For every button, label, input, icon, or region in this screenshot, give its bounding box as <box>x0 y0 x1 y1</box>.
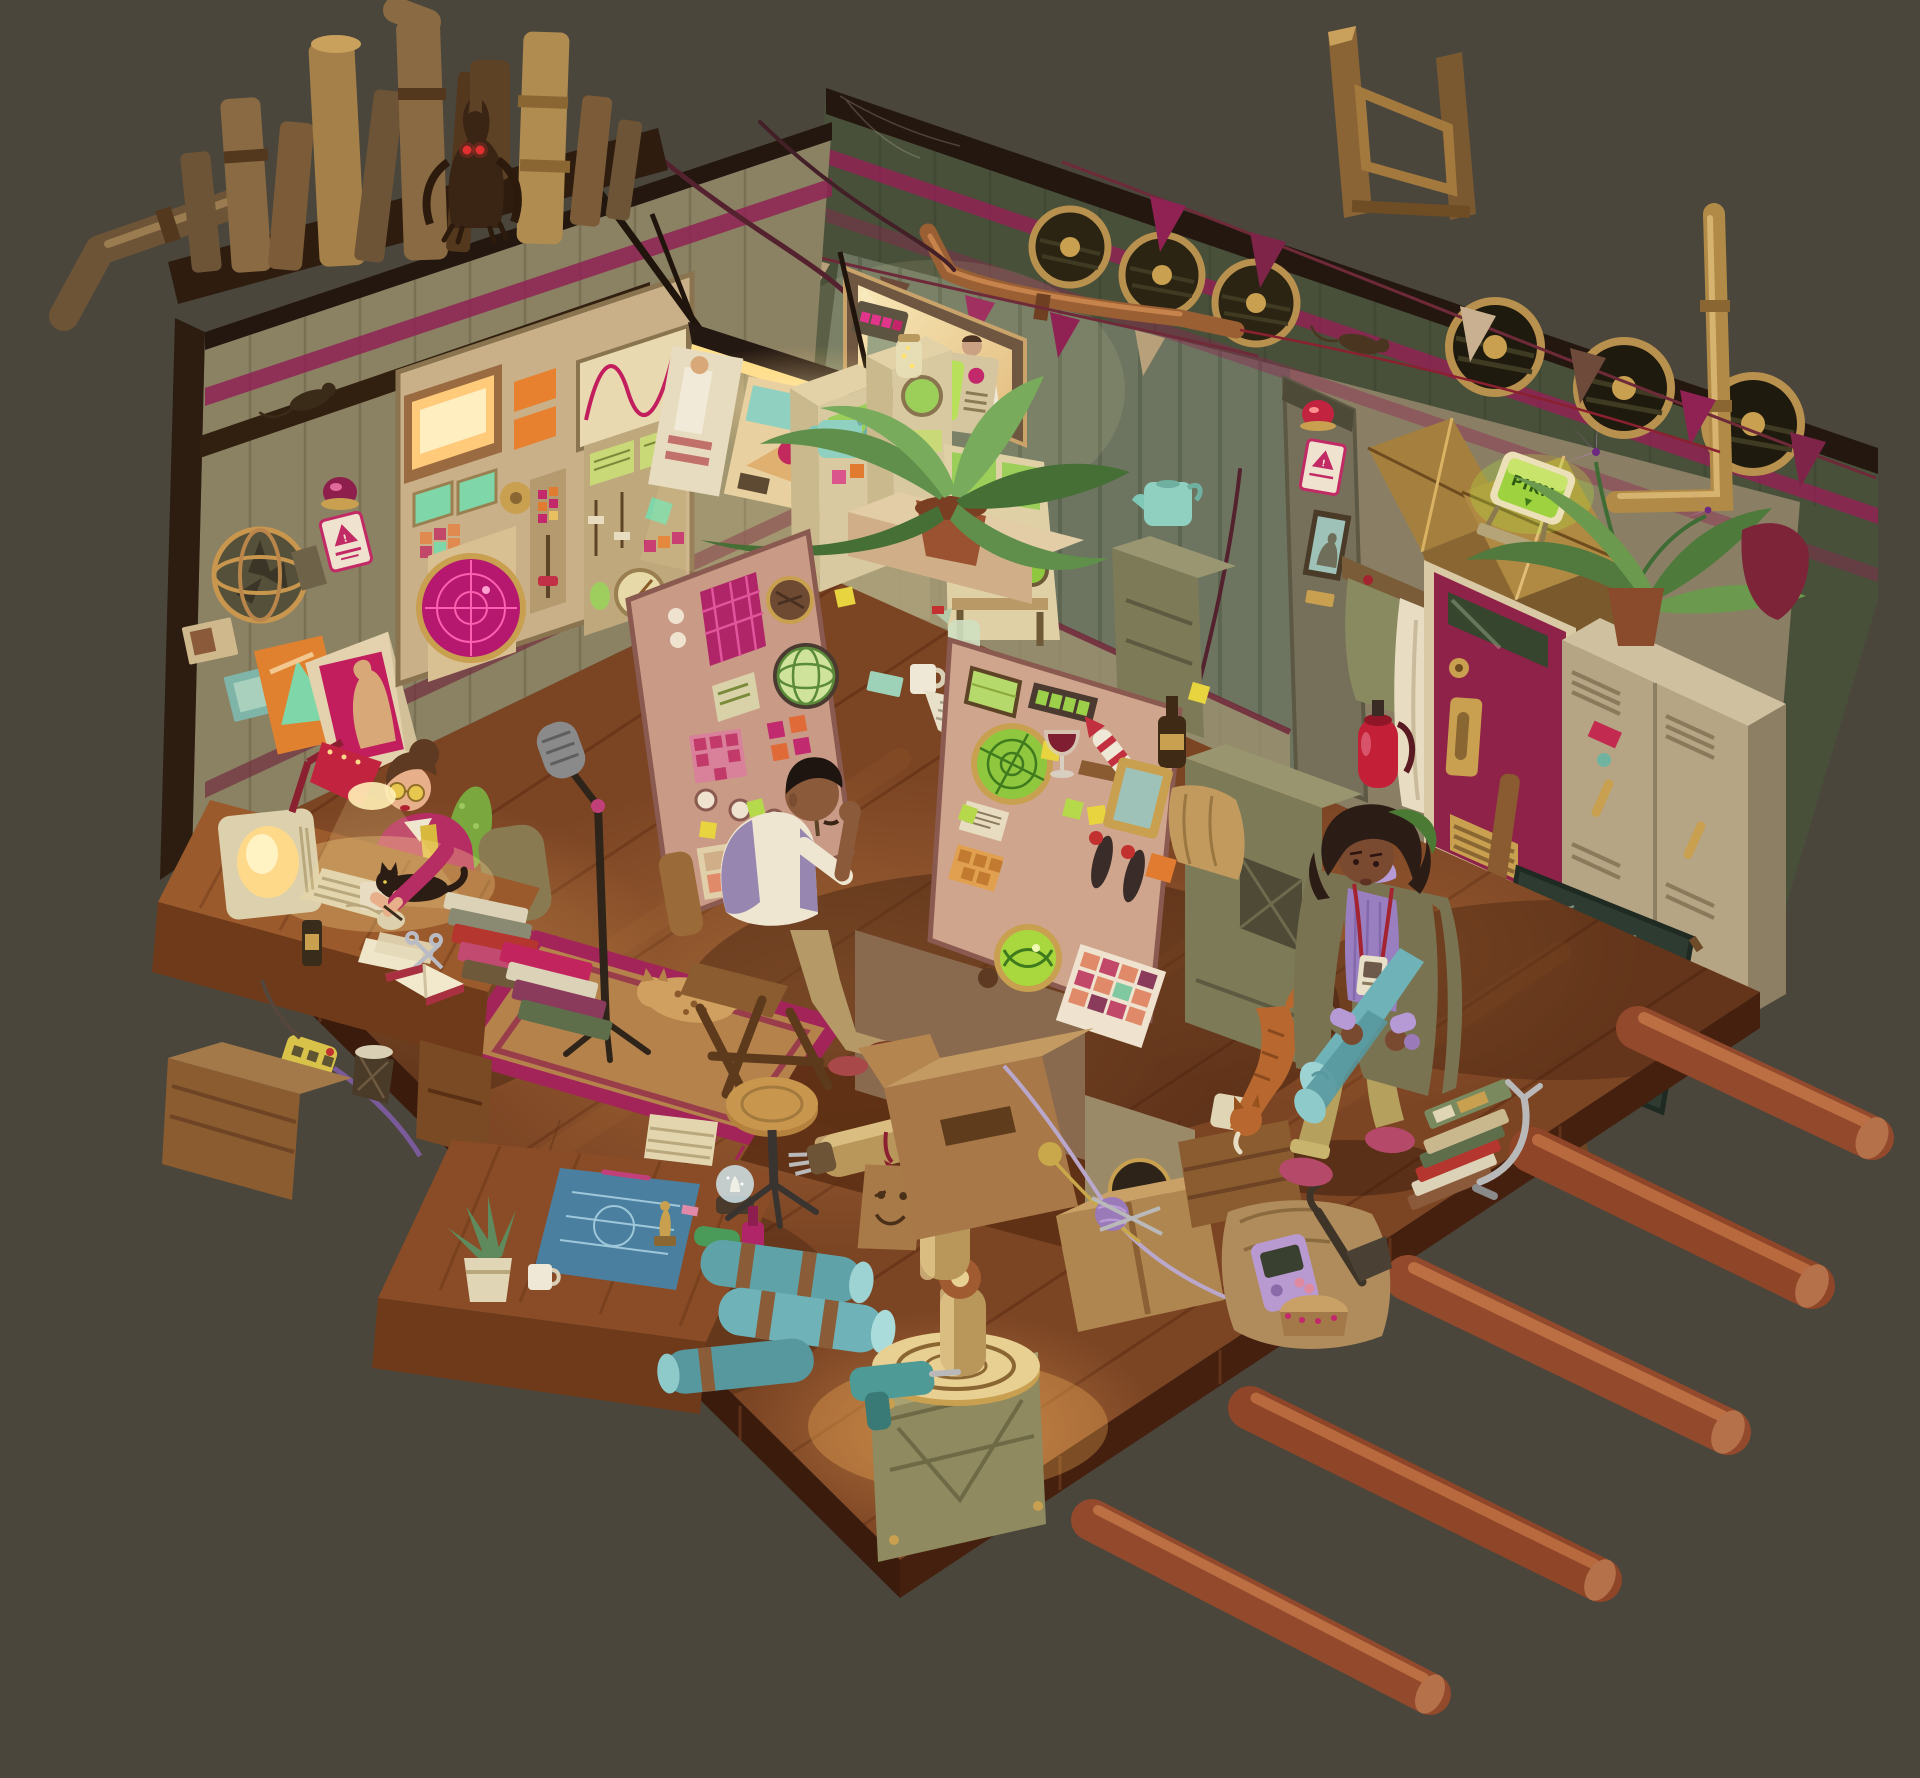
scene-canvas: ! <box>0 0 1920 1778</box>
watch <box>1404 1034 1420 1050</box>
sneaker <box>828 1056 868 1076</box>
globe-screen <box>776 646 836 706</box>
speaker-dial <box>768 578 812 622</box>
illustration-stage: ! <box>0 0 1920 1778</box>
ink-bottle <box>302 920 322 966</box>
hand <box>839 801 861 823</box>
pillar-warning-card: ! <box>1300 439 1346 495</box>
firefly-jar <box>896 334 922 378</box>
waste-basket <box>352 1045 394 1104</box>
slider-strip <box>530 468 566 614</box>
forearm <box>842 818 852 874</box>
vent-small-1 <box>1032 209 1108 285</box>
door-handle-plate <box>1445 697 1482 777</box>
desk-monitor <box>217 807 323 920</box>
drum-pot <box>1280 1295 1348 1336</box>
table-keyboard <box>644 1114 718 1166</box>
lips <box>400 805 410 811</box>
radar-green <box>974 726 1050 802</box>
hair-bun <box>409 739 439 769</box>
pink-keypad <box>689 729 747 784</box>
